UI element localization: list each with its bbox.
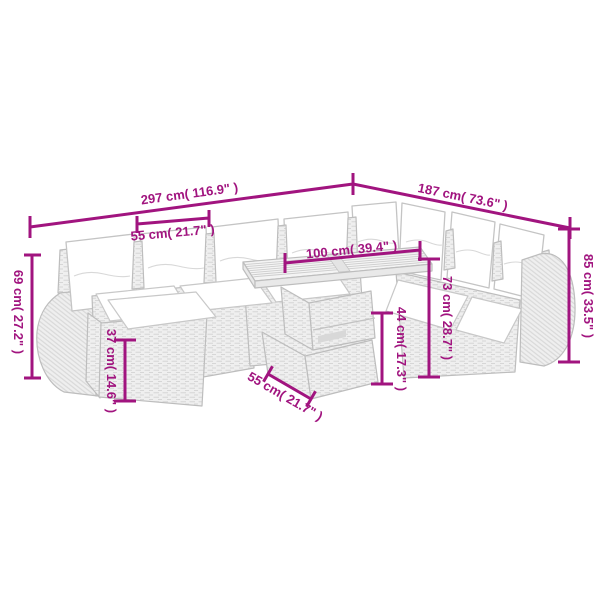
- frame-post: [444, 229, 455, 270]
- dim-total-depth-label: 187 cm( 73.6" ): [417, 180, 510, 213]
- right-armrest: [520, 254, 575, 366]
- frame-post: [204, 233, 216, 283]
- dim-backrest-height-label: 69 cm( 27.2" ): [11, 270, 26, 354]
- dim-table-height-label: 73 cm( 28.7" ): [440, 276, 455, 360]
- frame-post: [492, 241, 503, 281]
- dim-total-height-label: 85 cm( 33.5" ): [581, 254, 596, 338]
- dim-total-width-label: 297 cm( 116.9" ): [140, 180, 239, 208]
- dimension-diagram: 297 cm( 116.9" ) 187 cm( 73.6" ) 55 cm( …: [0, 0, 600, 600]
- dim-backrest-height: 69 cm( 27.2" ): [11, 255, 41, 378]
- dim-table-clearance-height-label: 44 cm( 17.3" ): [394, 307, 409, 391]
- dim-ottoman-height-label: 37 cm( 14.6" ): [104, 329, 119, 413]
- diagram-canvas: 297 cm( 116.9" ) 187 cm( 73.6" ) 55 cm( …: [0, 0, 600, 600]
- frame-post: [132, 241, 144, 289]
